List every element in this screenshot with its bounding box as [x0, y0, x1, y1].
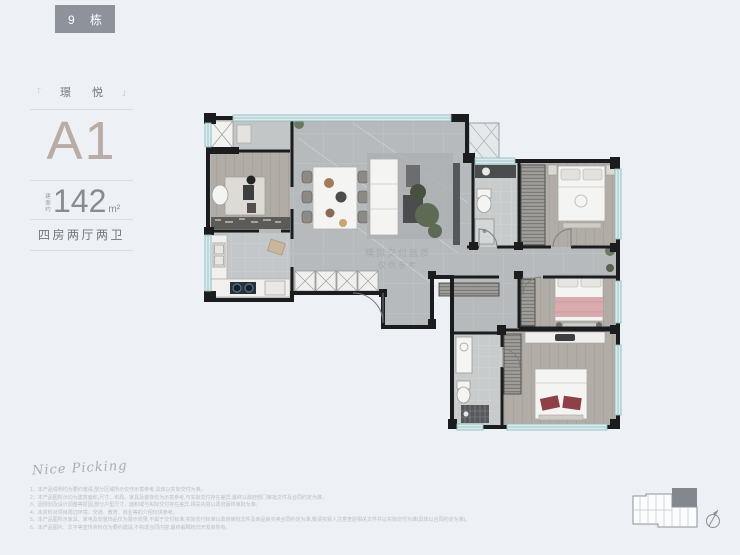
deco-bracket-right: 」 [122, 87, 130, 98]
area-unit: m² [108, 204, 120, 215]
brand-signature: Nice Picking [32, 459, 128, 479]
svg-text:仅供参考: 仅供参考 [378, 260, 418, 270]
unit-label: A1 [30, 114, 133, 168]
disclaimer-list: 1、本产品说明均为要约邀请,部分区域所示仅作示意参考,具体以实际交付为准。 2、… [30, 487, 510, 533]
divider [30, 250, 133, 251]
area-value: 142 [53, 185, 106, 217]
project-name: 璟 悦 [51, 84, 112, 100]
keyplan-icon [628, 486, 702, 532]
area-prefix: 建面约 [43, 193, 51, 213]
bedroom2-furniture [548, 165, 615, 228]
deco-bracket-left: 「 [33, 87, 41, 98]
divider [30, 219, 133, 220]
layout-label: 四房两厅两卫 [30, 226, 133, 243]
divider [30, 180, 133, 181]
floorplan-flyer: 9 栋 「 璟 悦 」 A1 建面约 142 m² 四房两厅两卫 [0, 0, 740, 555]
dining-furniture [302, 167, 368, 229]
divider [30, 109, 133, 110]
compass-icon [704, 506, 724, 530]
project-name-row: 「 璟 悦 」 [30, 84, 133, 100]
building-badge: 9 栋 [55, 5, 115, 33]
disclaimer-line: 1、本产品说明均为要约邀请,部分区域所示仅作示意参考,具体以实际交付为准。 [30, 487, 510, 495]
disclaimer-line: 6、本产品图片、文字等宣传资料仅为要约邀请,不构成合同内容,最终解释权归开发商所… [30, 525, 510, 533]
disclaimer-line: 5、本产品图所示家具、家电及软装饰品仅为展示效果,不属于交付标准;实际交付标准以… [30, 517, 510, 525]
master-bedroom-furniture [555, 275, 603, 328]
svg-text:模拟交付画质: 模拟交付画质 [365, 247, 431, 258]
floor-plan: 模拟交付画质 仅供参考 [203, 103, 623, 443]
area-row: 建面约 142 m² [30, 185, 133, 217]
disclaimer-line: 3、因规划及设计调整等原因,部分户型尺寸、面积或与实际交付存在差异,相关内容以政… [30, 502, 510, 510]
